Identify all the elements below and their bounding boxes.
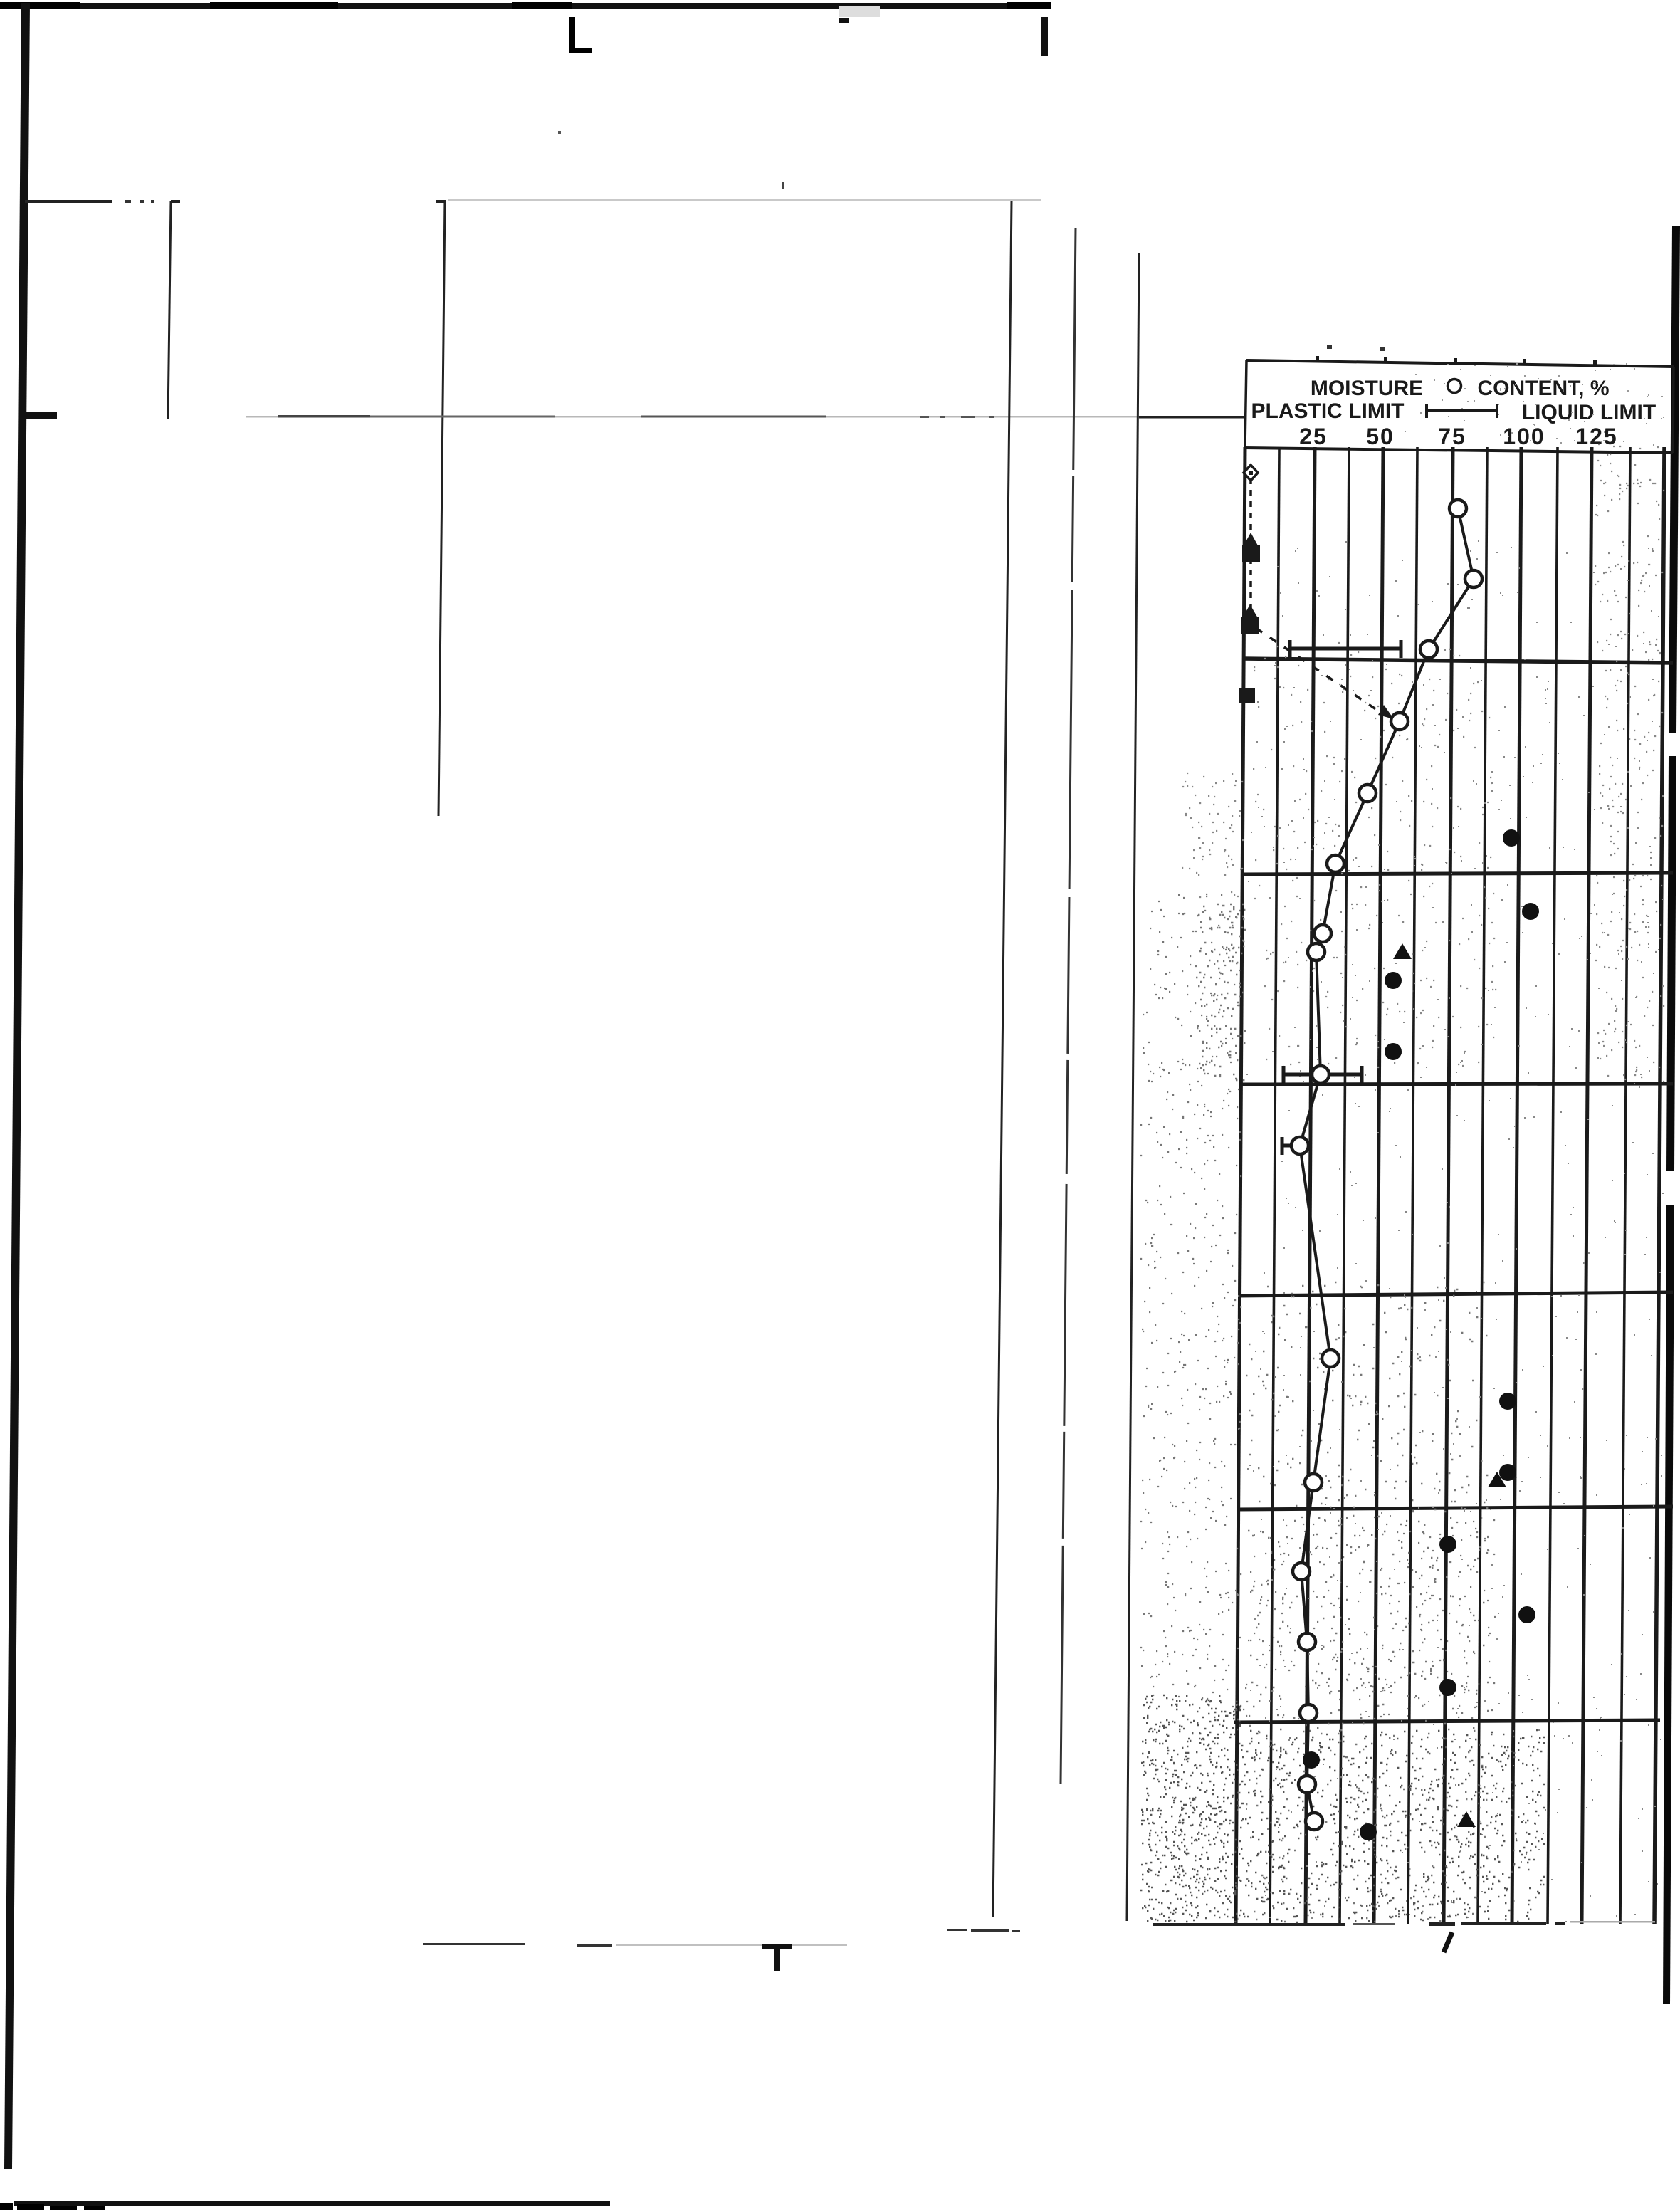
svg-text:25: 25 (1299, 424, 1328, 449)
svg-text:PLASTIC LIMIT: PLASTIC LIMIT (1251, 399, 1405, 423)
svg-text:MOISTURE: MOISTURE (1311, 377, 1423, 400)
svg-text:125: 125 (1575, 424, 1617, 449)
svg-text:LIQUID LIMIT: LIQUID LIMIT (1522, 401, 1656, 424)
svg-text:CONTENT, %: CONTENT, % (1477, 377, 1609, 400)
svg-text:75: 75 (1438, 424, 1466, 449)
svg-text:100: 100 (1503, 424, 1545, 449)
svg-text:50: 50 (1366, 424, 1395, 449)
